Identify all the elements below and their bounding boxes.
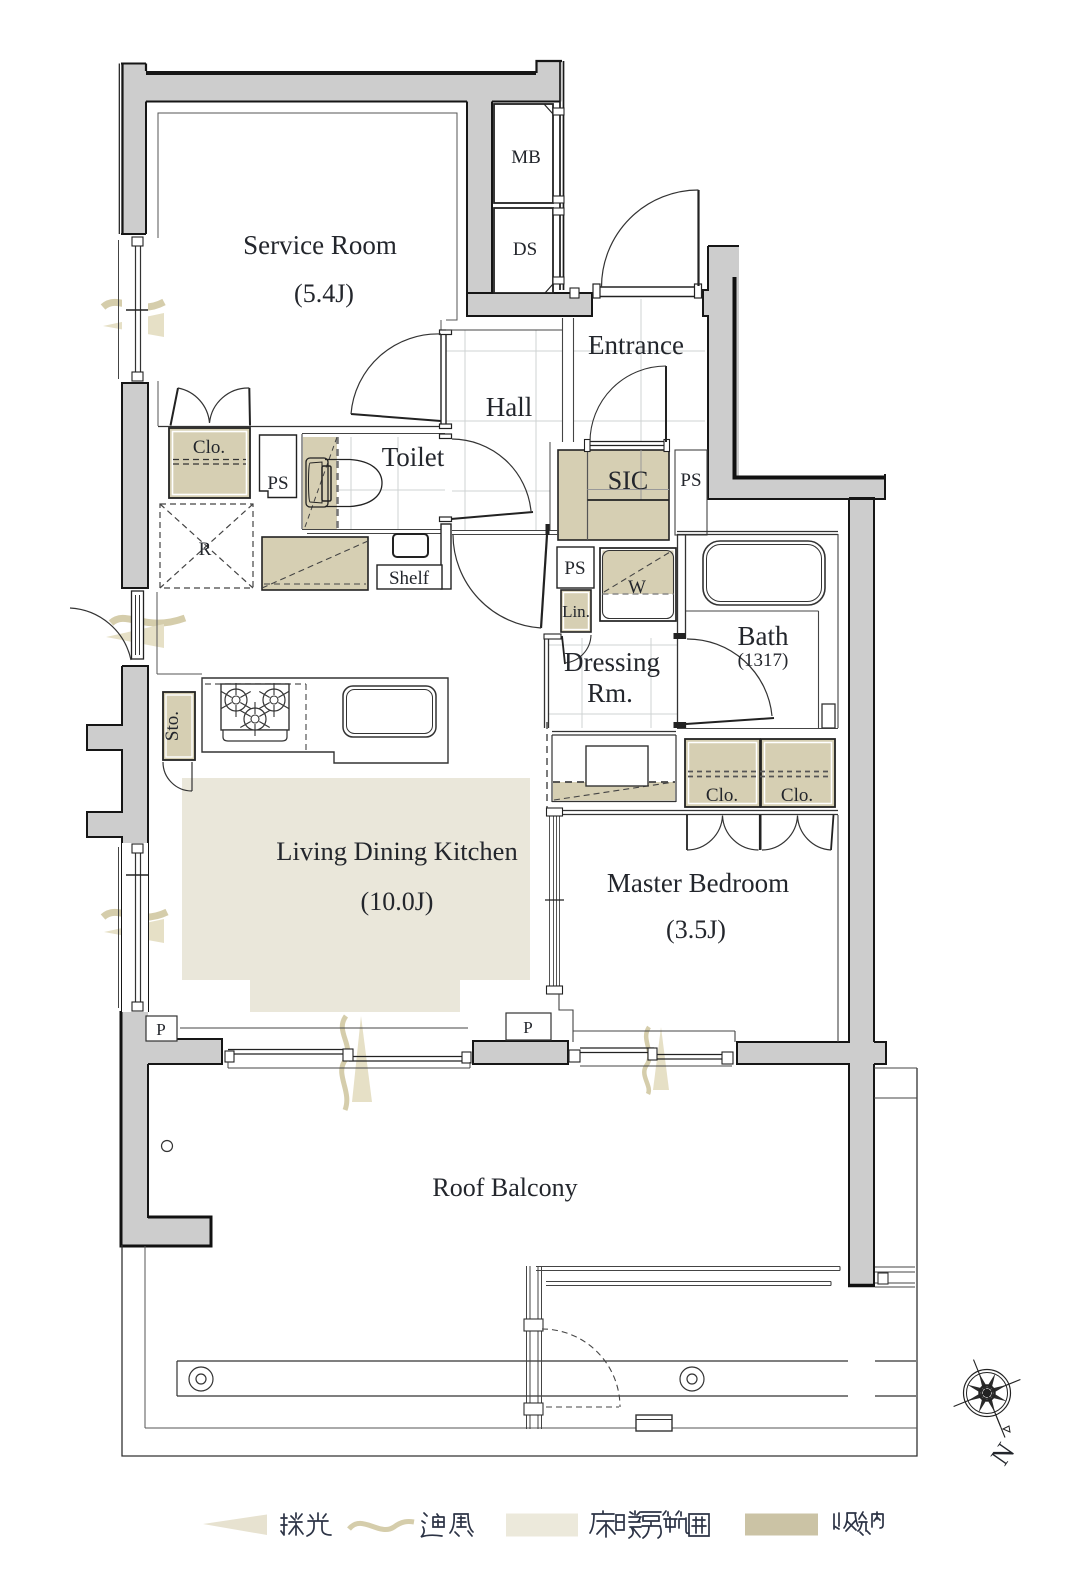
svg-text:Entrance: Entrance bbox=[588, 330, 684, 360]
svg-text:Clo.: Clo. bbox=[193, 437, 225, 458]
svg-text:Living Dining Kitchen: Living Dining Kitchen bbox=[276, 836, 517, 866]
svg-text:Roof Balcony: Roof Balcony bbox=[432, 1173, 577, 1202]
svg-text:Lin.: Lin. bbox=[562, 602, 590, 621]
svg-text:MB: MB bbox=[511, 147, 541, 168]
svg-text:Sto.: Sto. bbox=[162, 711, 183, 741]
svg-text:Toilet: Toilet bbox=[382, 442, 445, 472]
svg-text:Rm.: Rm. bbox=[587, 678, 633, 708]
svg-text:Bath: Bath bbox=[738, 621, 789, 651]
svg-text:Master Bedroom: Master Bedroom bbox=[607, 868, 789, 898]
svg-text:(10.0J): (10.0J) bbox=[361, 887, 434, 916]
svg-text:Dressing: Dressing bbox=[564, 647, 660, 677]
svg-text:P: P bbox=[523, 1018, 532, 1037]
svg-text:(1317): (1317) bbox=[738, 650, 789, 671]
svg-text:DS: DS bbox=[513, 239, 537, 260]
svg-text:(3.5J): (3.5J) bbox=[666, 915, 726, 944]
svg-text:R: R bbox=[199, 539, 212, 560]
svg-text:PS: PS bbox=[267, 473, 288, 494]
svg-text:Shelf: Shelf bbox=[389, 568, 430, 589]
svg-text:SIC: SIC bbox=[608, 466, 648, 495]
svg-text:Clo.: Clo. bbox=[781, 785, 813, 806]
svg-text:P: P bbox=[156, 1020, 165, 1039]
svg-text:(5.4J): (5.4J) bbox=[294, 279, 354, 308]
svg-text:W: W bbox=[628, 577, 646, 598]
svg-text:Service Room: Service Room bbox=[243, 230, 397, 260]
svg-text:Clo.: Clo. bbox=[706, 785, 738, 806]
svg-text:Hall: Hall bbox=[486, 392, 533, 422]
svg-text:PS: PS bbox=[680, 470, 701, 491]
svg-text:PS: PS bbox=[564, 558, 585, 579]
